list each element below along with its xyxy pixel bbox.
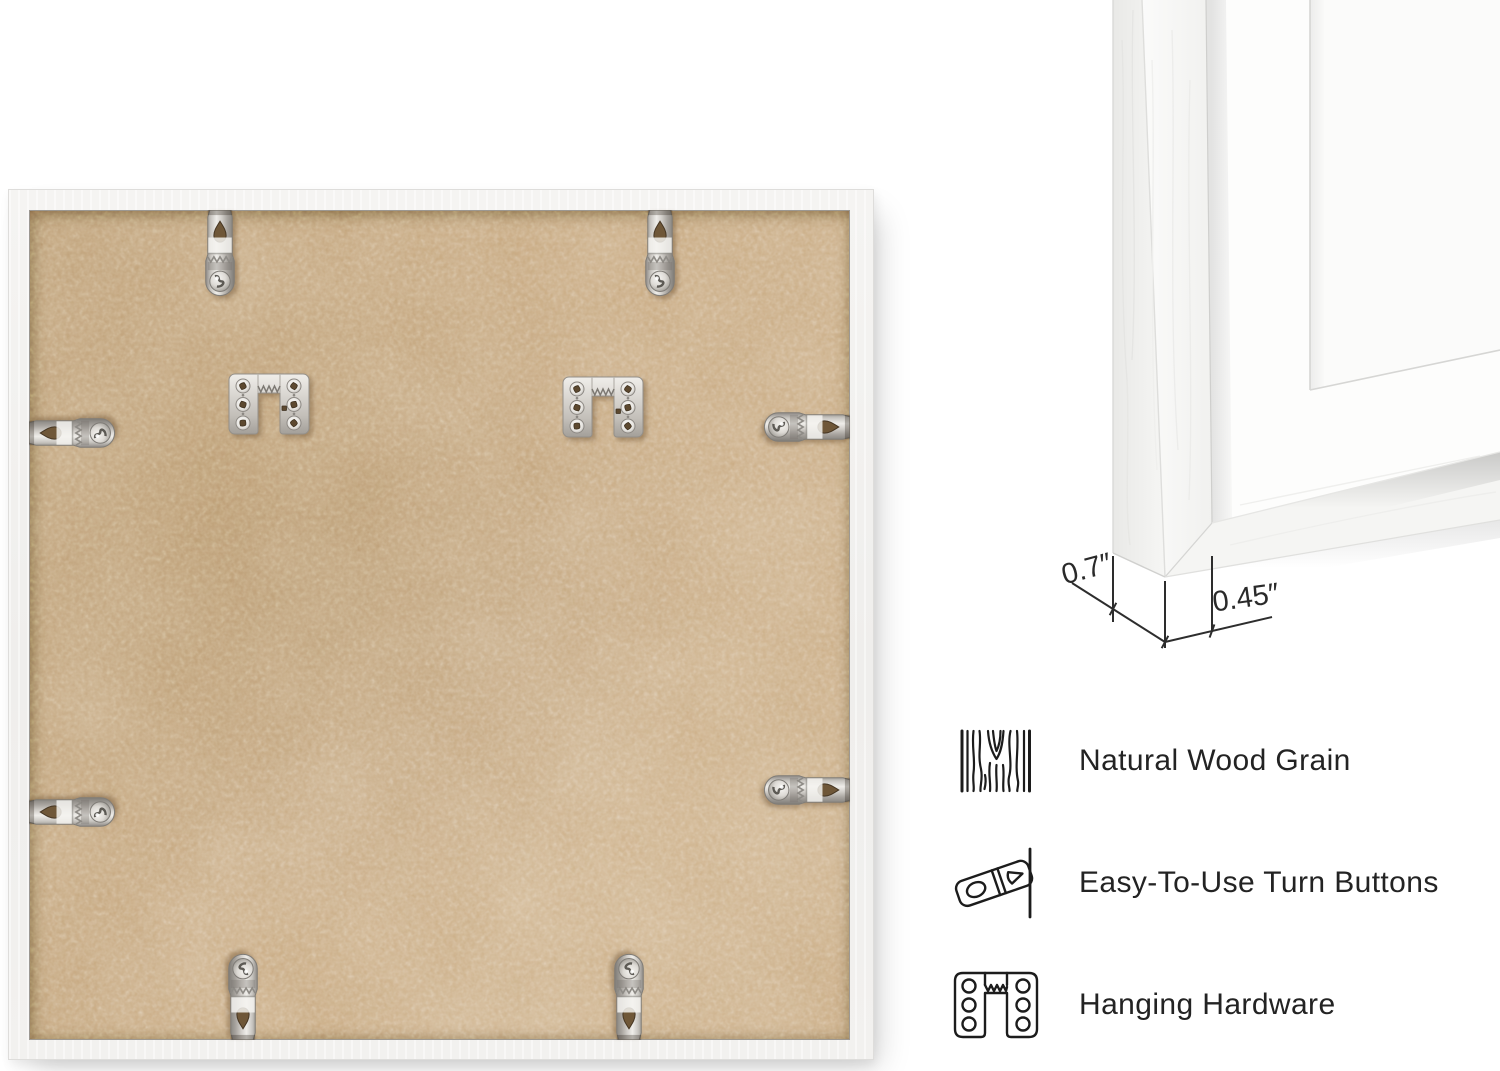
feature-label: Hanging Hardware [1079, 988, 1336, 1022]
dimension-label-depth: 0.7″ [1058, 547, 1115, 591]
feature-icon-cell [948, 844, 1043, 922]
turn-button-hardware-top-left [204, 210, 236, 318]
sawtooth-hanger-hardware-left [227, 372, 311, 436]
turn-button-hardware-right-upper [742, 411, 850, 443]
hanging-hardware-icon [952, 970, 1040, 1040]
mdf-backing [29, 210, 850, 1040]
turn-button-hardware-left-lower [29, 796, 137, 828]
mat-opening [1310, 0, 1500, 390]
product-image: 0.7″ 0.45″ [0, 0, 1500, 1071]
feature-row-hanging-hardware: Hanging Hardware [948, 970, 1500, 1040]
turn-button-icon [948, 844, 1043, 922]
turn-button-hardware-top-right [644, 210, 676, 318]
feature-row-turn-buttons: Easy-To-Use Turn Buttons [948, 848, 1500, 918]
mdf-texture [30, 211, 849, 1039]
feature-row-wood-grain: Natural Wood Grain [948, 726, 1500, 796]
wood-grain-icon [959, 729, 1033, 793]
turn-button-hardware-bottom-left [227, 932, 259, 1040]
feature-icon-cell [948, 729, 1043, 793]
turn-button-hardware-bottom-right [613, 932, 645, 1040]
feature-label: Natural Wood Grain [1079, 744, 1351, 778]
frame-back-photo [8, 189, 874, 1060]
sawtooth-hanger-hardware-right [561, 375, 645, 439]
turn-button-hardware-left-upper [29, 417, 137, 449]
feature-label: Easy-To-Use Turn Buttons [1079, 866, 1439, 900]
feature-icon-cell [948, 970, 1043, 1040]
frame-corner-detail: 0.7″ 0.45″ [1050, 0, 1500, 670]
turn-button-hardware-right-lower [742, 774, 850, 806]
feature-list: Natural Wood Grain Easy-To-Use Turn Butt… [948, 726, 1500, 1071]
